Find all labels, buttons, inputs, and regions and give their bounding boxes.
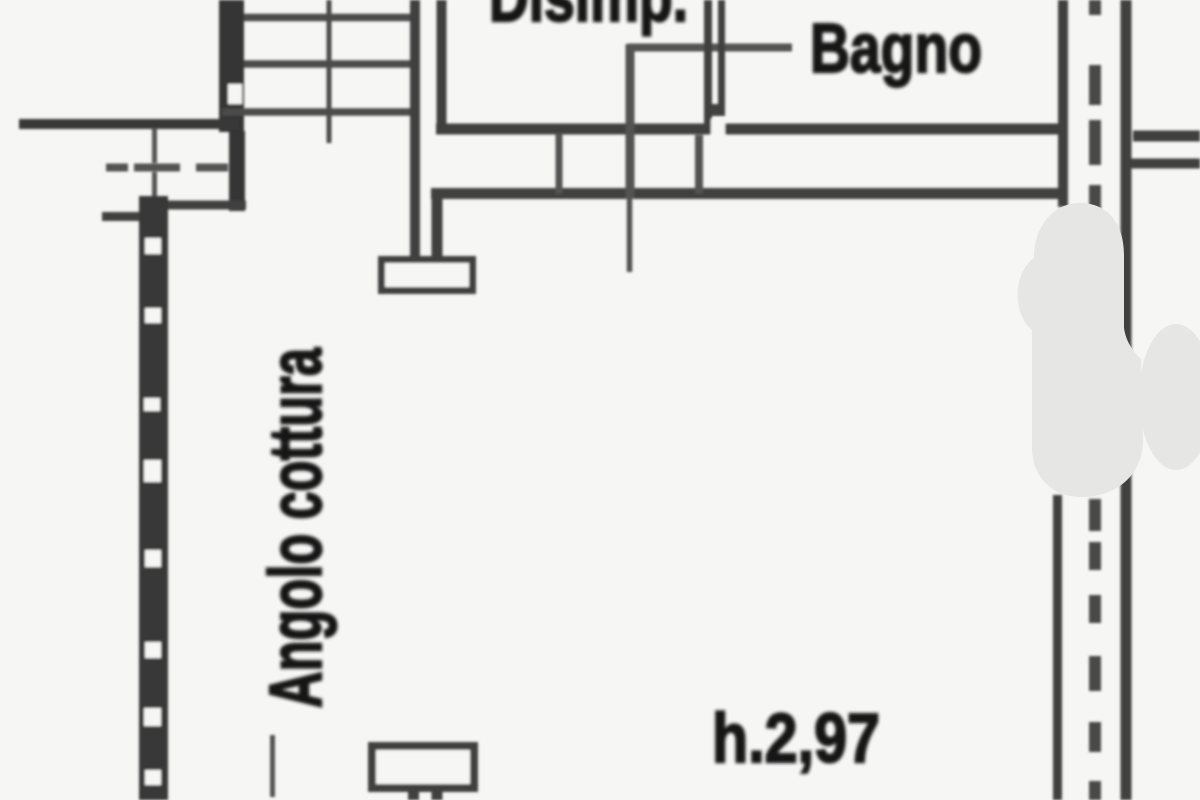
- svg-text:Angolo cottura: Angolo cottura: [254, 347, 337, 708]
- svg-text:Disimp.: Disimp.: [489, 0, 688, 36]
- svg-text:Bagno: Bagno: [810, 9, 982, 87]
- svg-text:h.2,97: h.2,97: [712, 699, 880, 777]
